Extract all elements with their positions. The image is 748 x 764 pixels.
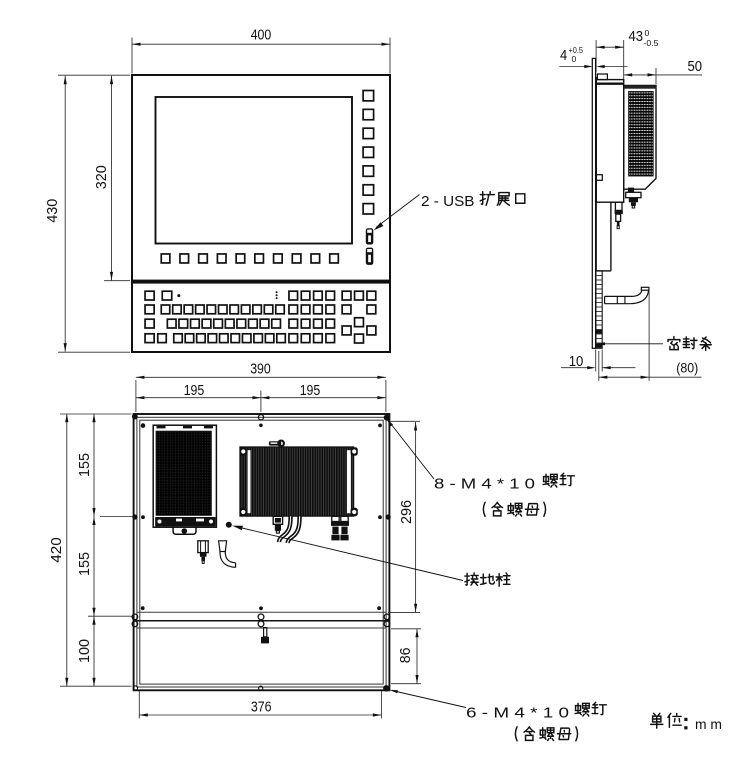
svg-text:155: 155 — [76, 552, 93, 576]
svg-text:50: 50 — [688, 58, 703, 75]
svg-text:0: 0 — [645, 28, 650, 38]
svg-text:0: 0 — [572, 54, 577, 64]
svg-text:376: 376 — [251, 699, 272, 716]
svg-text:6 - M 4 * 1 0: 6 - M 4 * 1 0 — [466, 705, 569, 722]
svg-text:100: 100 — [76, 639, 93, 663]
svg-text:155: 155 — [76, 453, 93, 477]
svg-text:2 - USB: 2 - USB — [421, 193, 475, 210]
svg-text:420: 420 — [48, 537, 65, 563]
svg-text:296: 296 — [398, 500, 415, 524]
svg-text:195: 195 — [184, 382, 205, 399]
svg-text:320: 320 — [93, 165, 110, 189]
svg-text:m m: m m — [695, 716, 722, 732]
svg-text:430: 430 — [44, 199, 61, 223]
svg-text:-0.5: -0.5 — [644, 38, 659, 48]
svg-text:4: 4 — [560, 47, 567, 64]
svg-text:43: 43 — [629, 28, 644, 45]
svg-text:86: 86 — [397, 648, 414, 664]
svg-text:195: 195 — [300, 382, 321, 399]
svg-text:(80): (80) — [676, 361, 698, 377]
svg-text:8 - M 4 * 1 0: 8 - M 4 * 1 0 — [434, 476, 535, 493]
svg-text:400: 400 — [251, 27, 272, 44]
svg-text:390: 390 — [250, 361, 271, 378]
